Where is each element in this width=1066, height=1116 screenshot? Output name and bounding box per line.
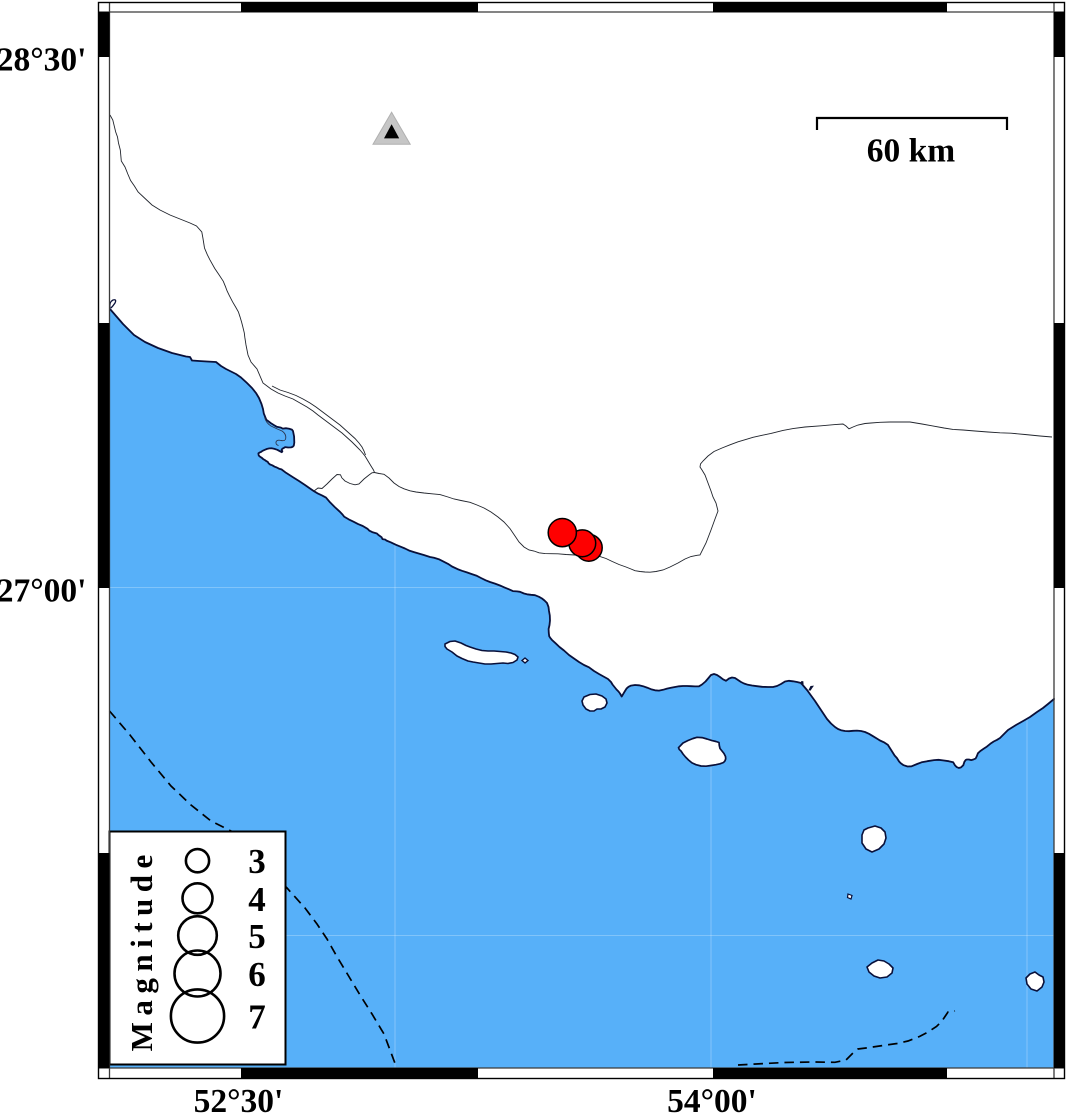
- svg-text:7: 7: [248, 998, 266, 1037]
- svg-text:4: 4: [248, 880, 266, 919]
- svg-text:Magnitude: Magnitude: [124, 848, 159, 1051]
- svg-text:27°00': 27°00': [0, 573, 87, 610]
- svg-text:6: 6: [248, 955, 266, 994]
- svg-text:52°30': 52°30': [194, 1083, 284, 1116]
- svg-text:5: 5: [248, 917, 266, 956]
- svg-text:28°30': 28°30': [0, 42, 87, 79]
- svg-text:60 km: 60 km: [867, 133, 956, 170]
- svg-text:54°00': 54°00': [667, 1083, 757, 1116]
- svg-text:3: 3: [248, 842, 266, 881]
